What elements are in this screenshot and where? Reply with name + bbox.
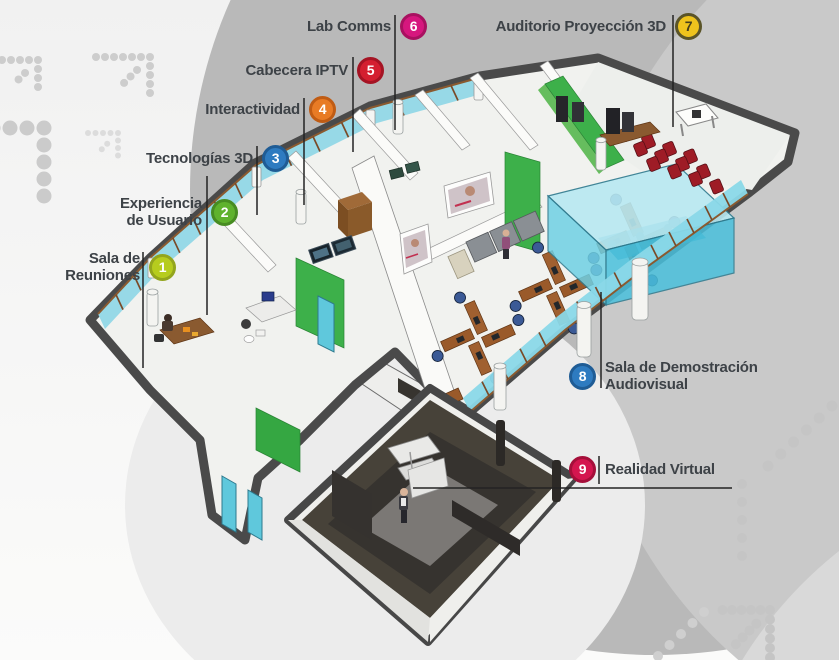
label-text: Realidad Virtual — [605, 461, 715, 478]
label-auditorio-proyeccion-3d: Auditorio Proyección 3D 7 — [496, 13, 702, 40]
badge-1: 1 — [149, 254, 176, 281]
badge-2: 2 — [211, 199, 238, 226]
badge-9: 9 — [569, 456, 596, 483]
badge-6: 6 — [400, 13, 427, 40]
label-sala-de-reuniones: Sala de Reuniones 1 — [65, 250, 176, 284]
label-realidad-virtual: 9 Realidad Virtual — [569, 456, 715, 483]
label-text: Lab Comms — [307, 18, 391, 35]
label-text: Sala de Demostración Audiovisual — [605, 359, 758, 393]
label-interactividad: Interactividad 4 — [205, 96, 336, 123]
label-sala-de-demostracion-audiovisual: 8 Sala de Demostración Audiovisual — [569, 359, 758, 393]
label-text: Sala de Reuniones — [65, 250, 140, 284]
label-text: Interactividad — [205, 101, 300, 118]
badge-8: 8 — [569, 363, 596, 390]
label-experiencia-de-usuario: Experiencia de Usuario 2 — [120, 195, 238, 229]
badge-5: 5 — [357, 57, 384, 84]
floor-plan-illustration — [0, 0, 839, 660]
badge-7: 7 — [675, 13, 702, 40]
badge-3: 3 — [262, 145, 289, 172]
floor-plan-infographic: Sala de Reuniones 1 Experiencia de Usuar… — [0, 0, 839, 660]
label-text: Auditorio Proyección 3D — [496, 18, 666, 35]
label-tecnologias-3d: Tecnologías 3D 3 — [146, 145, 289, 172]
label-text: Tecnologías 3D — [146, 150, 253, 167]
label-text: Experiencia de Usuario — [120, 195, 202, 229]
label-text: Cabecera IPTV — [246, 62, 348, 79]
label-lab-comms: Lab Comms 6 — [307, 13, 427, 40]
badge-4: 4 — [309, 96, 336, 123]
label-cabecera-iptv: Cabecera IPTV 5 — [246, 57, 384, 84]
